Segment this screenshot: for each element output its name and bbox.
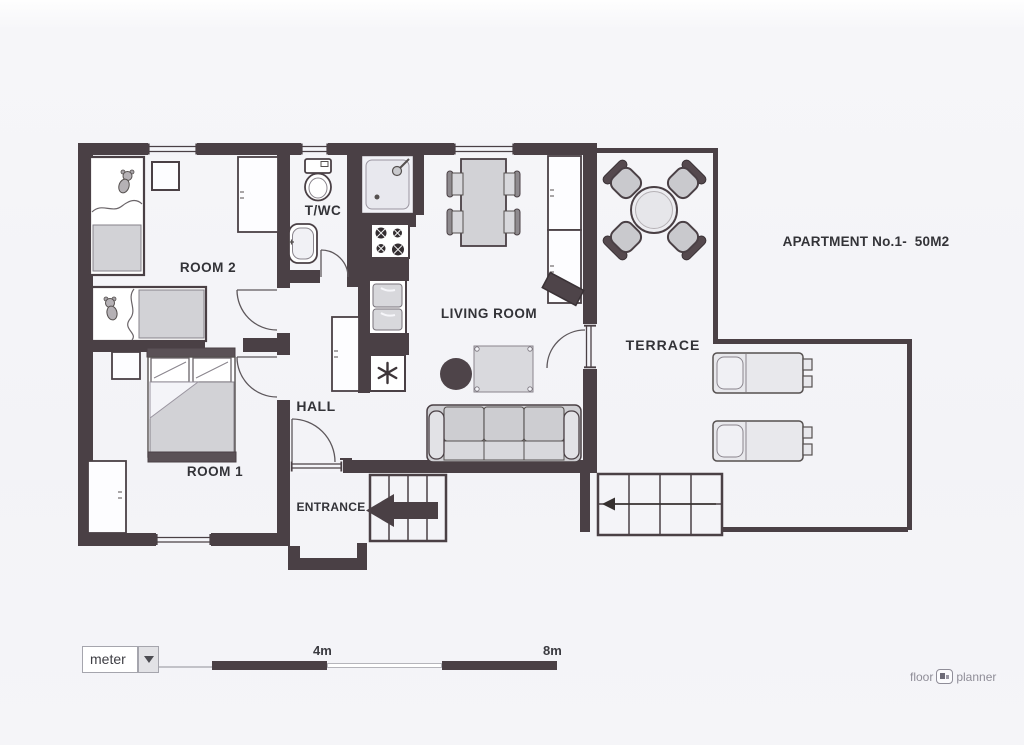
scale-segment-dark bbox=[212, 661, 327, 670]
terrace-stairs bbox=[598, 474, 722, 535]
double-bed bbox=[147, 348, 236, 462]
scale-label-8m: 8m bbox=[543, 643, 562, 658]
room-label-twc: T/WC bbox=[298, 203, 348, 218]
scale-unit-select[interactable]: meter bbox=[82, 646, 138, 673]
hall-cabinet bbox=[332, 317, 359, 391]
floorplanner-logo: floor planner bbox=[910, 669, 996, 684]
apartment-title: APARTMENT No.1- 50M2 bbox=[760, 234, 972, 249]
door-arc-twc bbox=[321, 250, 348, 277]
round-table bbox=[631, 187, 677, 233]
shower-icon bbox=[361, 155, 414, 214]
entrance-stairs bbox=[366, 475, 446, 541]
logo-word-planner: planner bbox=[956, 670, 996, 684]
room-label-living-room: LIVING ROOM bbox=[428, 306, 550, 321]
window-icon bbox=[301, 142, 328, 156]
room-label-room1: ROOM 1 bbox=[165, 464, 265, 479]
room-label-room2: ROOM 2 bbox=[158, 260, 258, 275]
room-label-hall: HALL bbox=[288, 398, 344, 414]
logo-word-floor: floor bbox=[910, 670, 933, 684]
room-label-terrace: TERRACE bbox=[618, 337, 708, 353]
scale-segment-light bbox=[327, 663, 442, 668]
room-label-entrance: ENTRANCE bbox=[292, 500, 370, 514]
stove-icon bbox=[371, 224, 409, 258]
door-arc-room1 bbox=[237, 357, 277, 397]
scale-line bbox=[159, 666, 213, 668]
dishwasher-icon bbox=[370, 355, 405, 391]
nightstand bbox=[112, 352, 140, 379]
room1-furniture bbox=[88, 348, 236, 533]
room2-furniture bbox=[90, 157, 278, 341]
pouf bbox=[440, 358, 472, 390]
door-arc-terrace bbox=[547, 330, 585, 368]
scale-segment-dark bbox=[442, 661, 557, 670]
washbasin-icon bbox=[289, 224, 317, 263]
chevron-down-icon bbox=[144, 656, 154, 663]
door-arc-room2 bbox=[237, 290, 277, 330]
floor-plan-drawing bbox=[0, 0, 1024, 745]
wardrobe bbox=[238, 157, 278, 232]
sofa bbox=[427, 405, 581, 462]
dining-table bbox=[461, 159, 506, 246]
scanned-floor-plan-page: ROOM 2 T/WC HALL ROOM 1 LIVING ROOM ENTR… bbox=[0, 0, 1024, 745]
door-arc-hall-entrance bbox=[292, 419, 335, 462]
scale-label-4m: 4m bbox=[313, 643, 332, 658]
scale-unit-dropdown-button[interactable] bbox=[138, 646, 159, 673]
single-bed-vertical bbox=[90, 157, 144, 275]
floorplanner-logo-icon bbox=[936, 669, 953, 684]
sun-loungers bbox=[713, 353, 812, 461]
toilet-icon bbox=[305, 159, 331, 201]
kitchen-sink-icon bbox=[369, 280, 406, 334]
terrace-door-closed bbox=[583, 324, 597, 369]
side-table bbox=[152, 162, 179, 190]
window-icon bbox=[156, 532, 211, 546]
window-icon bbox=[454, 142, 514, 156]
wardrobe bbox=[88, 461, 126, 533]
rug bbox=[474, 346, 533, 392]
sun-lounger bbox=[713, 421, 812, 461]
sun-lounger bbox=[713, 353, 812, 393]
single-bed-horizontal bbox=[92, 287, 206, 341]
window-icon bbox=[148, 142, 197, 156]
